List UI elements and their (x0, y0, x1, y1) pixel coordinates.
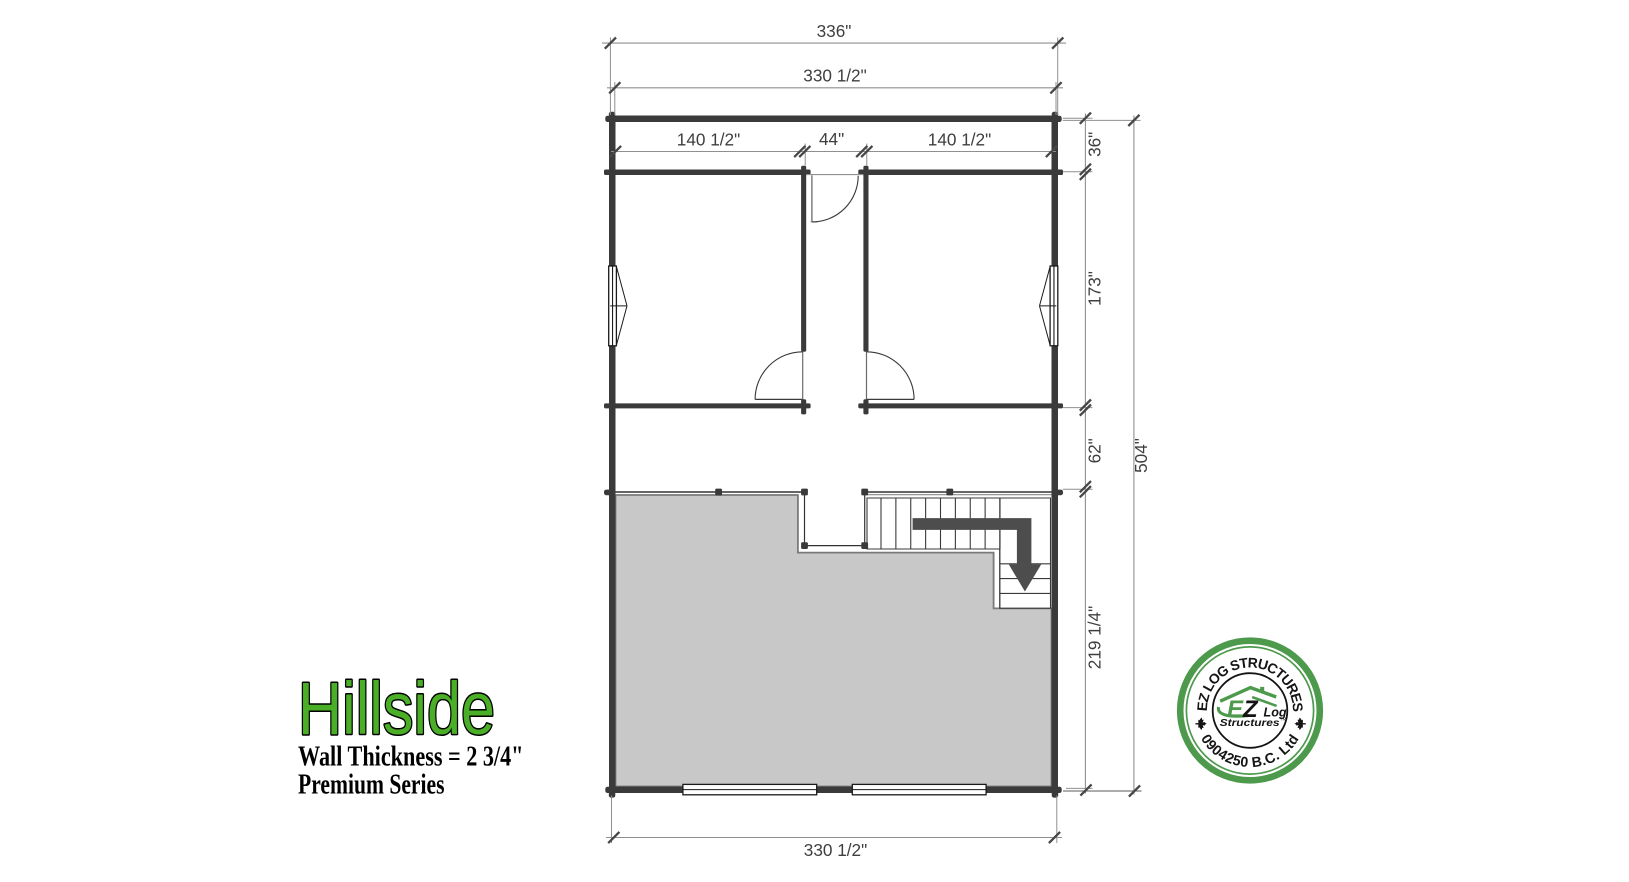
svg-text:Premium Series: Premium Series (298, 769, 445, 800)
svg-text:140 1/2": 140 1/2" (928, 129, 991, 149)
svg-text:Wall Thickness = 2 3/4": Wall Thickness = 2 3/4" (298, 742, 524, 773)
svg-text:336": 336" (817, 21, 852, 41)
svg-text:330 1/2": 330 1/2" (804, 840, 867, 860)
svg-text:44": 44" (819, 129, 844, 149)
svg-text:504": 504" (1131, 438, 1151, 473)
svg-text:36": 36" (1085, 132, 1105, 157)
svg-text:140 1/2": 140 1/2" (677, 129, 740, 149)
svg-text:173": 173" (1085, 271, 1105, 306)
svg-text:Structures: Structures (1220, 718, 1280, 729)
svg-text:62": 62" (1085, 438, 1105, 463)
svg-text:Hillside: Hillside (298, 667, 495, 750)
svg-text:330 1/2": 330 1/2" (803, 66, 866, 86)
svg-text:219 1/4": 219 1/4" (1085, 606, 1105, 669)
svg-text:TM: TM (1280, 716, 1287, 721)
